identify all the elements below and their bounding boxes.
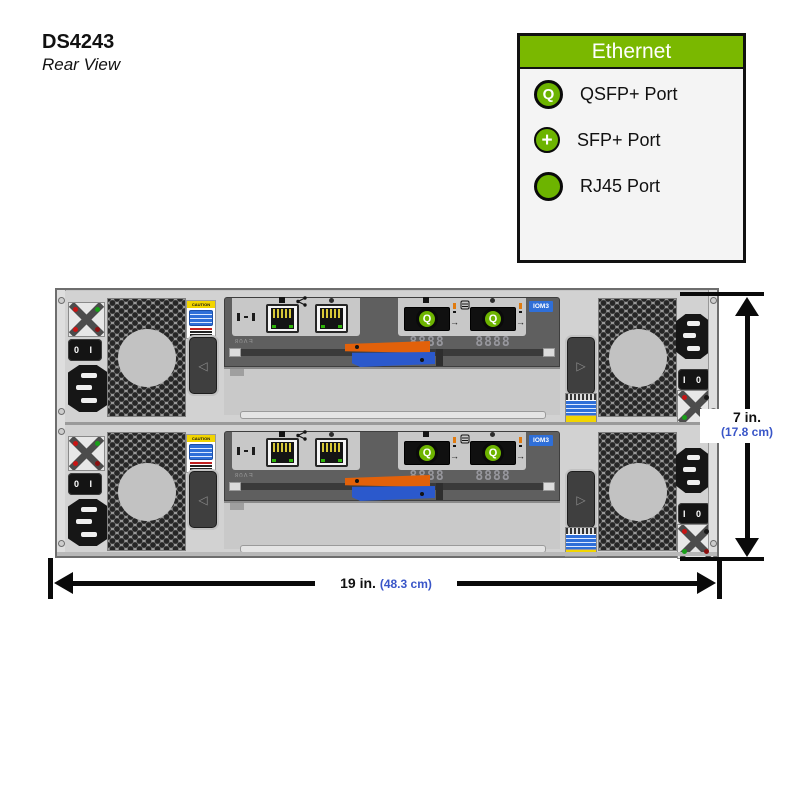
rj45-port [266,438,299,467]
width-dim-ext-left [48,558,53,599]
qsfp-port-icon: Q [416,308,438,330]
triangle-left-icon: ◁ [198,493,207,507]
shelf-id-display: 8888 [470,469,516,484]
port-pair-mark [237,447,255,455]
rj45-port-icon [534,172,563,201]
legend-item-rj45: RJ45 Port [534,170,660,202]
shelf-icon [460,433,470,445]
fan-hub [609,329,667,387]
ac-inlet-right [676,314,710,359]
height-dim-bottom-cap [680,557,764,561]
module-code: EV08 [234,471,253,477]
latch-slot [436,483,443,500]
tray-recess [240,411,546,419]
fan-hub [118,329,176,387]
width-dim-arrow-right-icon [697,572,716,594]
legend-item-sfp: + SFP+ Port [534,124,661,156]
view-name: Rear View [42,54,120,75]
product-name: DS4243 [42,30,120,54]
qsfp-port: Q [470,441,516,465]
iom-model-label: IOM3 [529,435,553,446]
height-dim-arrow-down-icon [735,538,759,557]
psu-fan-grille-left [107,298,186,417]
qsfp-port-icon: Q [534,80,563,109]
psu-fan-grille-left [107,432,186,551]
psu-fan-grille-right [598,298,677,417]
rj45-port [315,304,348,333]
triangle-right-icon: ▷ [576,493,585,507]
qsfp-port: Q [404,441,450,465]
screw-icon [58,540,65,547]
legend-header: Ethernet [520,36,743,69]
shelf-icon [460,299,470,311]
legend-label: SFP+ Port [577,130,661,151]
blank-tray [224,501,560,549]
port-pair-mark [237,313,255,321]
screw-icon [58,408,65,415]
arrow-right-icon: → [516,318,525,327]
psu-handle-left: ◁ [189,471,217,528]
square-icon [423,297,429,303]
circle-icon [329,432,334,437]
shelf-unit-bottom: 0 I CAUTION ◁ EV08 → [65,425,713,556]
caution-label: CAUTION [186,434,216,473]
ethernet-port-panel [232,298,360,336]
square-icon [279,297,285,303]
sfp-port-icon: + [534,127,560,153]
qsfp-port-icon: Q [416,442,438,464]
legend-label: QSFP+ Port [580,84,678,105]
qsfp-port: Q [470,307,516,331]
ethernet-legend: Ethernet Q QSFP+ Port + SFP+ Port RJ45 P… [517,33,746,263]
fan-hub [118,463,176,521]
chassis-rear-view: 0 I CAUTION ◁ EV08 → [55,288,719,558]
attention-icon [453,303,456,313]
fan-hub [609,463,667,521]
arrow-right-icon: → [516,452,525,461]
screw-icon [710,540,717,547]
qsfp-port: Q [404,307,450,331]
power-switch-left: 0 I [68,473,102,495]
legend-label: RJ45 Port [580,176,660,197]
square-icon [423,431,429,437]
psu-handle-right: ▷ [567,471,595,528]
power-switch-left: 0 I [68,339,102,361]
width-dim-ext-right [717,561,722,599]
tray-notch [230,369,244,376]
power-switch-right: I 0 [678,503,710,524]
psu-handle-left: ◁ [189,337,217,394]
screw-icon [710,297,717,304]
ethernet-port-panel [232,432,360,470]
width-value: 19 in. [340,575,380,591]
iom-controller-module: EV08 → → Q Q 8888 8888 IOM3 [224,291,560,422]
height-value-metric: (17.8 cm) [700,425,794,439]
height-value: 7 in. [700,409,794,425]
height-dimension-text: 7 in. (17.8 cm) [700,409,794,443]
power-switch-right: I 0 [678,369,710,390]
screw-icon [58,297,65,304]
qsfp-port-icon: Q [482,308,504,330]
qsfp-port-panel: → → Q Q [398,298,526,336]
circle-icon [490,432,495,437]
attention-icon [453,437,456,447]
latch-end-cap [229,348,241,357]
square-icon [279,431,285,437]
attention-icon [519,437,522,447]
latch-slot [436,349,443,366]
qsfp-port-icon: Q [482,442,504,464]
ac-inlet-right [676,448,710,493]
shelf-id-display: 8888 [470,335,516,350]
triangle-left-icon: ◁ [198,359,207,373]
circle-icon [329,298,334,303]
tray-notch [230,503,244,510]
circle-icon [490,298,495,303]
latch-end-cap [543,482,555,491]
rj45-port [315,438,348,467]
ac-inlet-left [68,365,108,412]
psu-fan-grille-right [598,432,677,551]
blank-tray [224,367,560,415]
psu-handle-right: ▷ [567,337,595,394]
triangle-right-icon: ▷ [576,359,585,373]
chassis-bottom-edge [57,552,717,556]
iom-model-label: IOM3 [529,301,553,312]
arrow-right-icon: → [450,452,459,461]
arrow-right-icon: → [450,318,459,327]
iom-controller-module: EV08 → → Q Q 8888 8888 IOM3 [224,425,560,556]
qsfp-port-panel: → → Q Q [398,432,526,470]
rj45-port [266,304,299,333]
title-block: DS4243 Rear View [42,30,120,75]
width-dimension-text: 19 in. (48.3 cm) [315,571,457,595]
width-value-metric: (48.3 cm) [380,577,432,591]
service-label [565,393,597,423]
psu-status-indicator-icon [68,436,105,471]
shelf-unit-top: 0 I CAUTION ◁ EV08 → [65,291,713,422]
caution-label: CAUTION [186,300,216,339]
latch-end-cap [229,482,241,491]
latch-end-cap [543,348,555,357]
legend-item-qsfp: Q QSFP+ Port [534,78,678,110]
ac-inlet-left [68,499,108,546]
attention-icon [519,303,522,313]
screw-icon [58,428,65,435]
psu-status-indicator-icon [68,302,105,337]
module-code: EV08 [234,337,253,343]
diagram-page: DS4243 Rear View Ethernet Q QSFP+ Port +… [0,0,800,800]
height-dim-top-cap [680,292,764,296]
